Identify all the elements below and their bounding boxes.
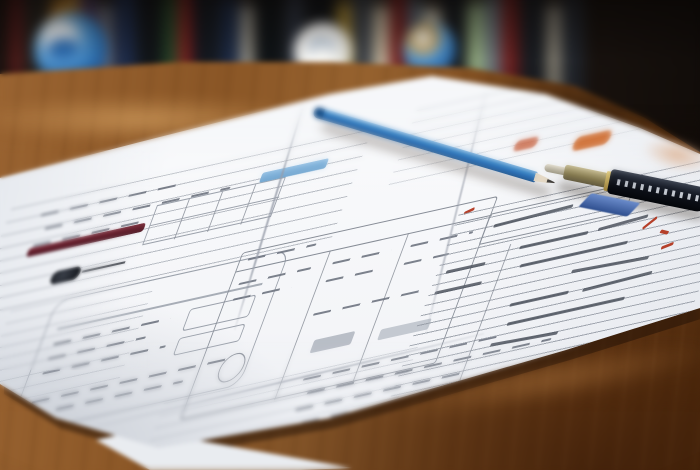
handwriting-stroke <box>509 291 569 307</box>
text-stroke <box>332 249 391 264</box>
text-stroke <box>232 286 291 301</box>
depth-blur-left <box>0 150 150 370</box>
handwriting-stroke <box>446 262 486 273</box>
red-annotation <box>661 242 674 250</box>
text-stroke <box>313 288 431 316</box>
handwriting-stroke <box>582 271 652 292</box>
handwriting-stroke <box>434 281 482 294</box>
photo-desk-wireframes <box>0 0 700 470</box>
text-stroke <box>325 269 375 282</box>
handwriting-stroke <box>571 256 649 273</box>
